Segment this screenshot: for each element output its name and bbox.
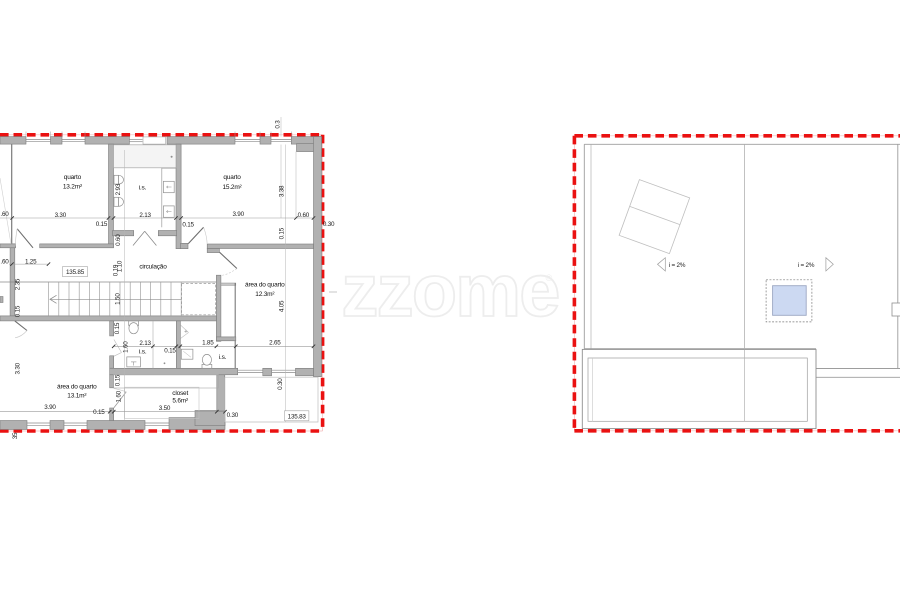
svg-text:i.s.: i.s. bbox=[139, 349, 147, 356]
svg-text:0.3: 0.3 bbox=[274, 120, 281, 129]
svg-text:i.s.: i.s. bbox=[139, 184, 147, 191]
svg-text:.60: .60 bbox=[0, 258, 9, 265]
svg-text:0.15: 0.15 bbox=[96, 221, 108, 228]
svg-text:2.13: 2.13 bbox=[139, 212, 151, 219]
svg-text:3.90: 3.90 bbox=[232, 211, 244, 218]
svg-text:0.60: 0.60 bbox=[115, 234, 122, 246]
svg-text:2.65: 2.65 bbox=[269, 339, 281, 346]
svg-text:13.2m²: 13.2m² bbox=[63, 183, 83, 190]
svg-text:0.15: 0.15 bbox=[114, 322, 121, 334]
svg-text:0.15: 0.15 bbox=[93, 409, 105, 416]
svg-text:®: ® bbox=[546, 273, 553, 283]
svg-text:2.35: 2.35 bbox=[15, 278, 22, 290]
svg-text:2.93: 2.93 bbox=[115, 183, 122, 195]
svg-text:135.83: 135.83 bbox=[288, 413, 307, 420]
svg-text:0.30: 0.30 bbox=[227, 412, 239, 419]
svg-text:área do quarto: área do quarto bbox=[57, 384, 97, 391]
svg-text:i = 2%: i = 2% bbox=[669, 262, 686, 269]
svg-text:0.15: 0.15 bbox=[15, 305, 22, 317]
svg-text:3.38: 3.38 bbox=[278, 185, 285, 197]
svg-text:1.60: 1.60 bbox=[123, 341, 130, 353]
svg-text:1.60: 1.60 bbox=[116, 390, 123, 402]
svg-text:área do quarto: área do quarto bbox=[245, 282, 285, 289]
svg-text:closet: closet bbox=[172, 390, 188, 397]
svg-text:15.2m²: 15.2m² bbox=[222, 184, 242, 191]
svg-text:circulação: circulação bbox=[139, 264, 167, 271]
svg-text:quarto: quarto bbox=[223, 174, 241, 181]
svg-text:1.50: 1.50 bbox=[115, 293, 122, 305]
svg-text:i = 2%: i = 2% bbox=[798, 262, 815, 269]
svg-text:1.10: 1.10 bbox=[117, 260, 124, 272]
svg-text:3.90: 3.90 bbox=[44, 404, 56, 411]
svg-text:0.30: 0.30 bbox=[277, 378, 284, 390]
svg-text:.60: .60 bbox=[0, 211, 9, 218]
svg-text:3.30: 3.30 bbox=[55, 212, 67, 219]
svg-text:0.15: 0.15 bbox=[164, 348, 176, 355]
svg-text:quarto: quarto bbox=[64, 174, 82, 181]
svg-text:1.25: 1.25 bbox=[25, 258, 37, 265]
svg-text:0.15: 0.15 bbox=[182, 222, 194, 229]
svg-text:0.60: 0.60 bbox=[298, 212, 310, 219]
svg-text:0.15: 0.15 bbox=[278, 227, 285, 239]
svg-text:5.6m²: 5.6m² bbox=[172, 397, 189, 404]
svg-text:0.15: 0.15 bbox=[115, 374, 122, 386]
svg-text:3.30: 3.30 bbox=[15, 362, 22, 374]
svg-text:12.3m²: 12.3m² bbox=[255, 291, 275, 298]
svg-text:1.85: 1.85 bbox=[202, 340, 214, 347]
svg-text:zzome: zzome bbox=[341, 249, 558, 332]
svg-text:13.1m²: 13.1m² bbox=[67, 392, 87, 399]
svg-text:135.85: 135.85 bbox=[66, 269, 85, 276]
svg-text:0.30: 0.30 bbox=[323, 221, 335, 228]
svg-text:3.50: 3.50 bbox=[159, 405, 171, 412]
svg-text:4.05: 4.05 bbox=[278, 300, 285, 312]
svg-text:i.s.: i.s. bbox=[219, 354, 227, 361]
svg-text:2.13: 2.13 bbox=[139, 340, 151, 347]
svg-text:35: 35 bbox=[12, 432, 19, 439]
